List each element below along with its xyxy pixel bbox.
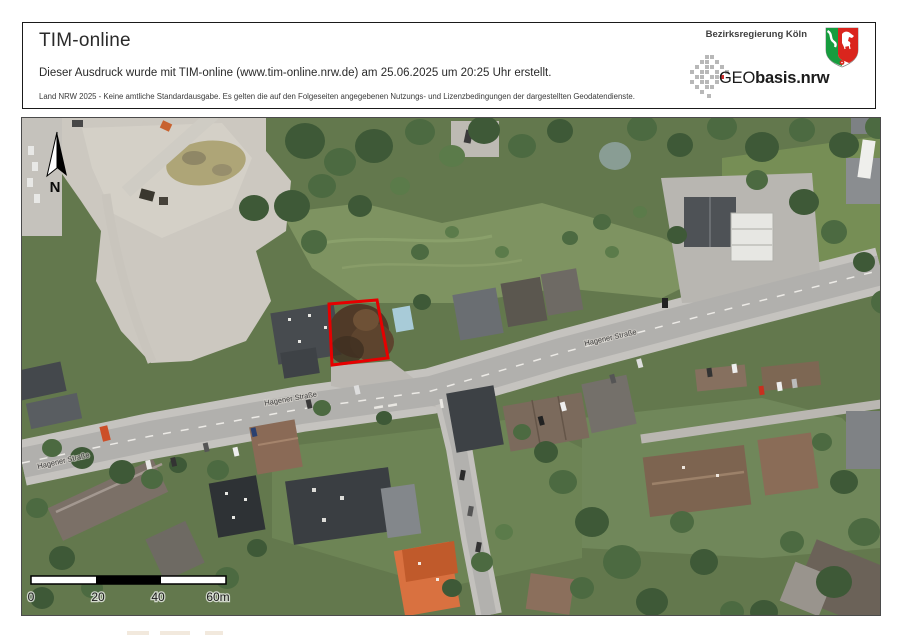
geobasis-logo: GEObasis.nrw (687, 53, 897, 103)
print-info-line: Dieser Ausdruck wurde mit TIM-online (ww… (39, 67, 551, 79)
cutoff-footer-shape (127, 631, 149, 635)
page-title: TIM-online (39, 30, 131, 52)
pale-tree (599, 142, 631, 170)
scale-tick-20: 20 (91, 590, 105, 604)
header-box: TIM-online Dieser Ausdruck wurde mit TIM… (22, 22, 876, 109)
geobasis-wordmark: GEObasis.nrw (719, 69, 829, 88)
cutoff-footer-shape (160, 631, 190, 635)
scale-tick-0: 0 (28, 590, 35, 604)
agency-label: Bezirksregierung Köln (706, 29, 807, 40)
white-flat-roof-building (731, 213, 773, 261)
large-brown-roof-house (643, 445, 752, 517)
map-viewport: Hagener Straße Hagener Straße Hagener St… (21, 117, 881, 616)
cutoff-footer-shape (205, 631, 223, 635)
scale-tick-40: 40 (151, 590, 165, 604)
license-info-line: Land NRW 2025 - Keine amtliche Standarda… (39, 92, 635, 101)
aerial-photo: Hagener Straße Hagener Straße Hagener St… (22, 118, 880, 615)
scale-tick-60m: 60m (206, 590, 229, 604)
mansard-roof-building (209, 475, 266, 537)
north-label: N (50, 179, 61, 196)
print-page: TIM-online Dieser Ausdruck wurde mit TIM… (0, 0, 900, 635)
